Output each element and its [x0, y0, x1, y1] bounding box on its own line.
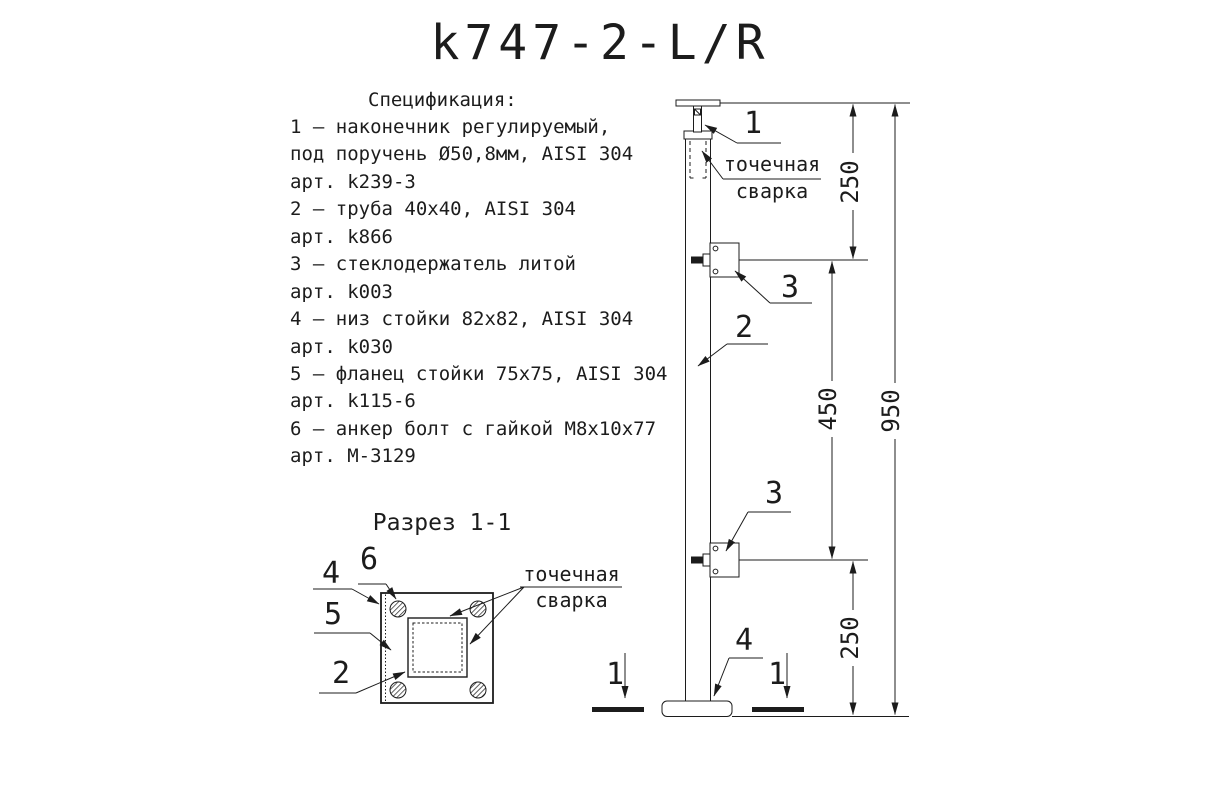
elevation-callout-glass-holder-bottom: 3 [765, 477, 783, 512]
post-tube [686, 139, 711, 702]
section-cut-bar-right [752, 707, 804, 712]
spec-line: арт. k003 [290, 282, 668, 309]
section-cut-bar-left [592, 707, 644, 712]
elevation-callout-tip: 1 [744, 107, 762, 142]
section-weld-note-line1: точечная [520, 563, 623, 586]
technical-drawing-page: k747-2-L/R Спецификация: 1 – наконечник … [0, 0, 1205, 800]
dimension-top-250: 250 [837, 160, 865, 203]
spec-heading: Спецификация: [368, 90, 517, 112]
spec-line: под поручень Ø50,8мм, AISI 304 [290, 144, 668, 171]
spec-list: 1 – наконечник регулируемый, под поручен… [290, 117, 668, 474]
spec-line: 3 – стеклодержатель литой [290, 254, 668, 281]
spec-line: арт. k866 [290, 227, 668, 254]
spec-line: 1 – наконечник регулируемый, [290, 117, 668, 144]
section-weld-note-line2: сварка [520, 589, 623, 612]
dimension-middle-450: 450 [815, 387, 843, 430]
section-tube-outline [408, 618, 467, 677]
dimension-bottom-250: 250 [837, 616, 865, 659]
spec-line: 2 – труба 40x40, AISI 304 [290, 199, 668, 226]
handrail-saddle [676, 100, 720, 106]
dimension-overall-950: 950 [878, 389, 906, 432]
elevation-weld-note-line1: точечная [722, 153, 822, 176]
dimension-extension-lines [739, 260, 868, 560]
spec-line: арт. k239-3 [290, 172, 668, 199]
callout-underlines [723, 143, 821, 658]
elevation-weld-note-line2: сварка [722, 180, 822, 203]
section-view-title: Разрез 1-1 [372, 510, 512, 536]
post-base-flange [662, 701, 732, 717]
drawing-title: k747-2-L/R [425, 16, 775, 71]
section-marker-left: 1 [606, 658, 624, 693]
spec-line: 5 – фланец стойки 75x75, AISI 304 [290, 364, 668, 391]
section-callout-tube: 2 [332, 657, 350, 692]
spec-line: 6 – анкер болт с гайкой M8x10x77 [290, 419, 668, 446]
spec-line: арт. M-3129 [290, 446, 668, 473]
elevation-callout-glass-holder-top: 3 [781, 271, 799, 306]
section-callout-anchor: 6 [360, 543, 378, 578]
section-callout-plate: 4 [322, 557, 340, 592]
spec-line: арт. k115-6 [290, 391, 668, 418]
section-callout-flange: 5 [324, 598, 342, 633]
section-marker-right: 1 [768, 658, 786, 693]
spec-line: 4 – низ стойки 82x82, AISI 304 [290, 309, 668, 336]
spec-line: арт. k030 [290, 337, 668, 364]
elevation-callout-tube: 2 [735, 311, 753, 346]
elevation-callout-base: 4 [735, 624, 753, 659]
